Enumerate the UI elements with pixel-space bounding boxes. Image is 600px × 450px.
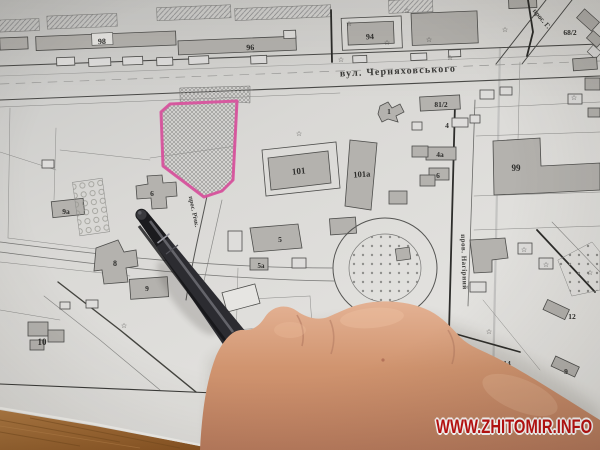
star-icon: ☆ (571, 94, 577, 102)
label-4a: 4а (436, 150, 444, 159)
label-9a: 9а (62, 207, 70, 216)
label-81-2: 81/2 (434, 100, 448, 109)
star-icon: ☆ (587, 269, 593, 277)
star-icon: ☆ (426, 36, 432, 44)
label-9b: 9 (564, 367, 568, 376)
label-6-left: 6 (150, 189, 154, 198)
photo-of-city-plan: 98 96 94 68/2 81/2 1 4 4а 6 99 101 101а … (0, 0, 600, 450)
label-10: 10 (38, 337, 48, 347)
star-icon: ☆ (346, 20, 352, 28)
label-8: 8 (113, 259, 117, 268)
label-99: 99 (512, 163, 522, 173)
star-icon: ☆ (338, 56, 344, 64)
label-5: 5 (278, 235, 282, 244)
star-icon: ☆ (486, 328, 492, 336)
star-icon: ☆ (384, 39, 390, 47)
map-scene: 98 96 94 68/2 81/2 1 4 4а 6 99 101 101а … (0, 0, 600, 450)
label-12: 12 (568, 312, 576, 321)
star-icon: ☆ (404, 7, 410, 15)
label-101a: 101а (353, 168, 371, 179)
label-5a: 5а (258, 262, 266, 270)
label-4: 4 (445, 121, 449, 130)
label-6-right: 6 (436, 171, 440, 180)
label-94: 94 (366, 32, 374, 41)
star-icon: ☆ (296, 130, 302, 138)
star-icon: ☆ (502, 26, 508, 34)
label-9: 9 (145, 284, 149, 293)
star-icon: ☆ (447, 54, 453, 62)
watermark: WWW.ZHITOMIR.INFO (436, 417, 592, 439)
star-icon: ☆ (121, 322, 127, 330)
label-68-2: 68/2 (563, 28, 577, 37)
label-1: 1 (387, 107, 391, 116)
star-icon: ☆ (521, 246, 527, 254)
pen-tip (136, 209, 147, 220)
label-101: 101 (291, 165, 306, 176)
star-icon: ☆ (543, 261, 549, 269)
label-96: 96 (246, 43, 254, 52)
label-98: 98 (98, 37, 106, 46)
skin-mark (381, 358, 384, 361)
